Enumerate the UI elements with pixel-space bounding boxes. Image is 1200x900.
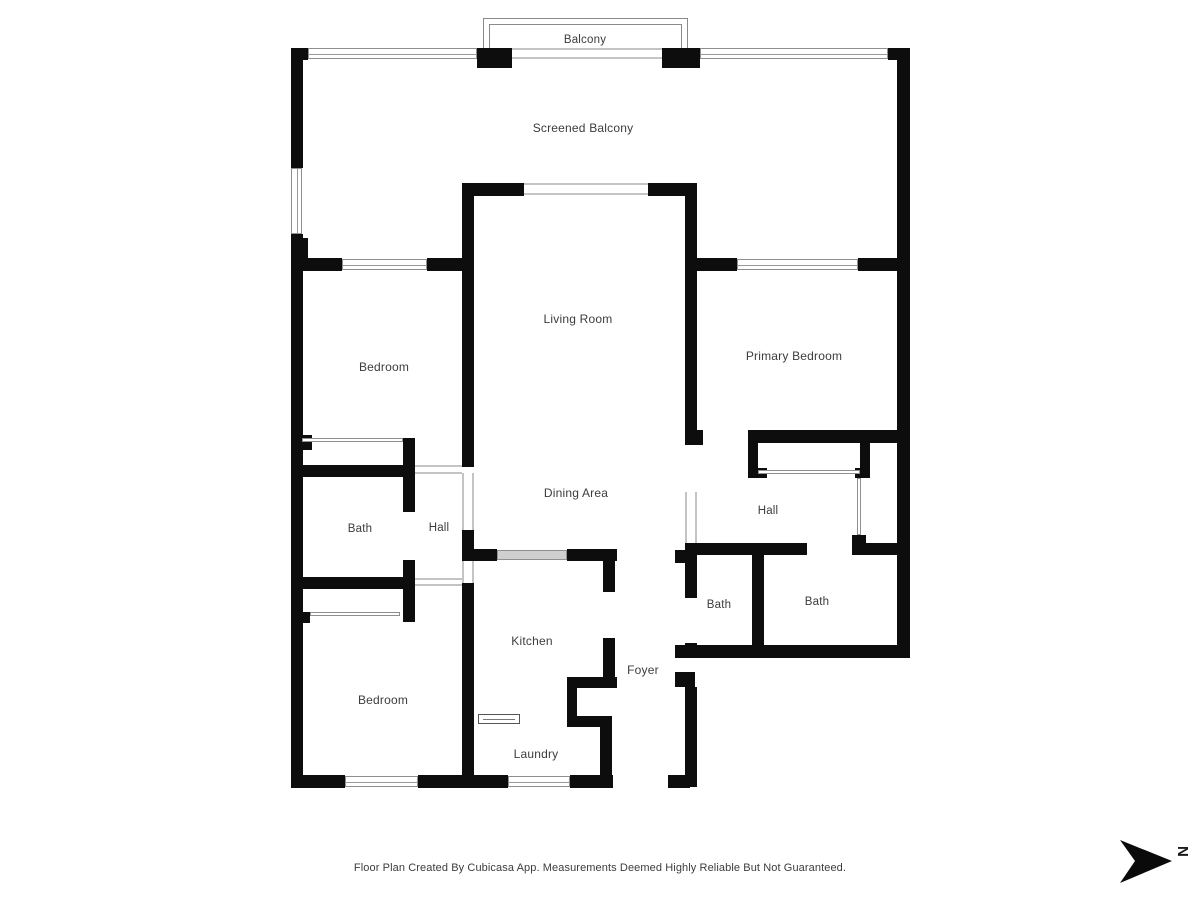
wall-segment (291, 234, 303, 787)
wall-segment (462, 183, 524, 196)
closet-door-line (857, 478, 861, 535)
room-label-dining-area: Dining Area (544, 486, 608, 500)
cased-opening (685, 492, 697, 543)
wall-segment (675, 645, 910, 658)
compass-north-label: N (1174, 846, 1191, 857)
room-label-bath-middle: Bath (707, 599, 731, 611)
wall-segment (403, 560, 415, 589)
cased-opening (462, 561, 474, 583)
wall-segment (418, 775, 508, 788)
wall-segment (668, 775, 690, 788)
cased-opening (415, 465, 462, 474)
laundry-counter-symbol (478, 714, 520, 724)
wall-segment (603, 638, 615, 678)
window-symbol (345, 776, 418, 787)
room-label-primary-bedroom: Primary Bedroom (746, 349, 842, 363)
room-label-kitchen: Kitchen (511, 634, 552, 648)
wall-segment (462, 196, 474, 467)
wall-segment (858, 258, 910, 271)
sliding-door-opening (524, 183, 648, 195)
wall-segment (570, 775, 613, 788)
window-symbol (342, 259, 427, 270)
balcony-door-opening (512, 48, 662, 59)
wall-segment (603, 561, 615, 592)
cased-opening (462, 473, 474, 530)
room-label-bath-right: Bath (805, 596, 829, 608)
wall-segment (748, 430, 910, 443)
wall-segment (291, 577, 403, 589)
wall-segment (427, 258, 467, 271)
room-label-bedroom-upper: Bedroom (359, 360, 409, 374)
wall-segment (662, 48, 700, 68)
room-label-living-room: Living Room (544, 312, 613, 326)
wall-segment (567, 549, 617, 561)
north-arrow-icon: N (1114, 836, 1192, 892)
window-symbol (737, 259, 858, 270)
wall-segment (675, 550, 685, 563)
kitchen-window-symbol (497, 550, 567, 560)
wall-segment (291, 612, 310, 623)
cased-opening (415, 578, 462, 586)
wall-segment (291, 465, 403, 477)
window-symbol (700, 48, 888, 59)
room-label-bedroom-lower: Bedroom (358, 693, 408, 707)
wall-segment (291, 48, 303, 168)
room-label-foyer: Foyer (627, 663, 659, 677)
closet-door-line (758, 470, 860, 474)
wall-segment (403, 438, 415, 512)
closet-door-line (302, 438, 403, 442)
wall-segment (291, 258, 342, 271)
wall-segment (477, 48, 512, 68)
wall-segment (462, 549, 497, 561)
wall-segment (648, 183, 697, 196)
wall-segment (685, 430, 703, 445)
wall-segment (462, 583, 474, 787)
wall-segment (897, 48, 910, 658)
footer-disclaimer: Floor Plan Created By Cubicasa App. Meas… (0, 862, 1200, 874)
window-symbol (291, 168, 302, 234)
closet-door-line (310, 612, 400, 616)
room-label-laundry: Laundry (514, 747, 559, 761)
wall-segment (852, 543, 910, 555)
room-label-bath-left: Bath (348, 523, 372, 535)
room-label-balcony: Balcony (564, 34, 606, 46)
room-label-hall-right: Hall (758, 505, 779, 517)
window-symbol (508, 776, 570, 787)
window-symbol (308, 48, 477, 59)
wall-segment (752, 555, 764, 645)
wall-segment (675, 672, 695, 687)
wall-segment (692, 258, 737, 271)
floor-plan: Balcony Screened Balcony Living Room Bed… (0, 0, 1200, 900)
wall-segment (291, 775, 345, 788)
room-label-hall-left: Hall (429, 522, 450, 534)
wall-segment (687, 543, 807, 555)
room-label-screened-balcony: Screened Balcony (533, 121, 634, 135)
wall-segment (403, 589, 415, 622)
wall-segment (685, 196, 697, 432)
wall-segment (685, 687, 697, 787)
